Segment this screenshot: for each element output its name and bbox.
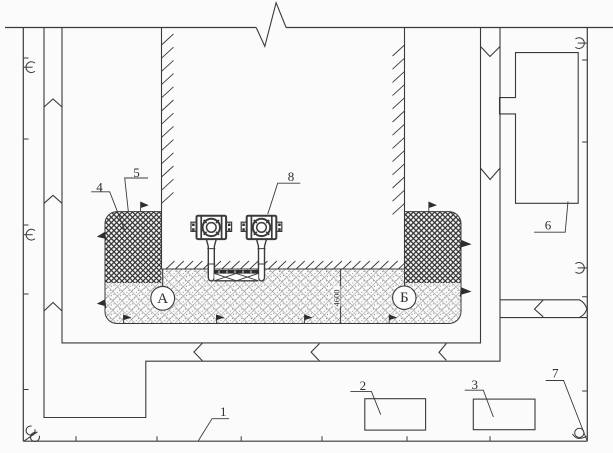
svg-text:Б: Б	[400, 290, 409, 306]
svg-text:1: 1	[220, 404, 227, 419]
svg-text:2: 2	[360, 378, 367, 393]
svg-text:8: 8	[288, 169, 295, 184]
svg-text:4600: 4600	[332, 290, 342, 307]
svg-text:А: А	[157, 291, 168, 307]
svg-text:6: 6	[545, 218, 552, 233]
svg-text:7: 7	[552, 366, 559, 381]
